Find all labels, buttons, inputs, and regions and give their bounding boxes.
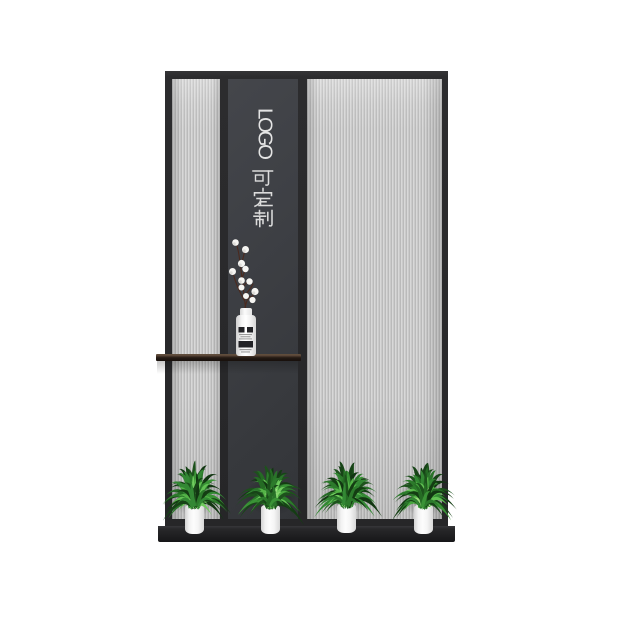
svg-text:LOGO: LOGO: [254, 108, 277, 160]
